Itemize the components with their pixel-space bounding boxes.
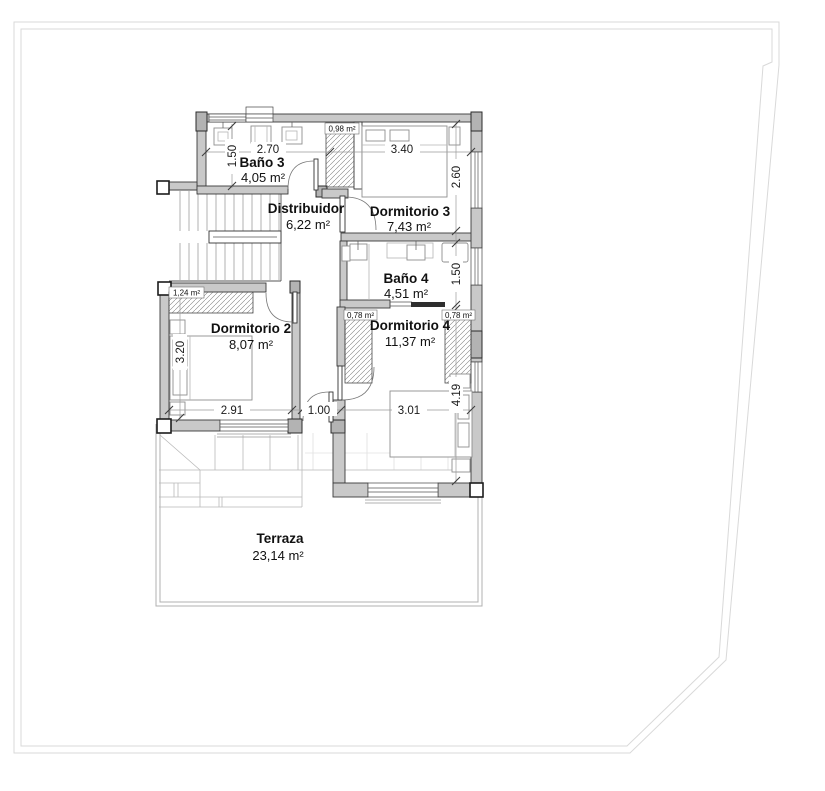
dorm4-wardrobe-left bbox=[345, 311, 372, 383]
pillar-dorm4-se bbox=[470, 483, 483, 497]
room-area-terraza: 23,14 m² bbox=[252, 548, 304, 563]
label-dorm2-wardrobe-area: 1,24 m² bbox=[173, 289, 200, 298]
dim-dorm2-depth: 3.20 bbox=[175, 341, 187, 363]
label-hall-closet-area: 0,98 m² bbox=[328, 125, 355, 134]
corner-pillar-ne bbox=[471, 112, 482, 131]
dim-dorm3-width: 3.40 bbox=[391, 144, 413, 156]
bed-dorm3 bbox=[362, 126, 460, 197]
dim-dorm4-depth: 4.19 bbox=[451, 384, 463, 406]
dim-bano3-depth: 1.50 bbox=[227, 145, 239, 167]
room-area-dorm2: 8,07 m² bbox=[229, 337, 274, 352]
room-area-dorm4: 11,37 m² bbox=[385, 334, 436, 349]
room-name-dorm4: Dormitorio 4 bbox=[370, 318, 451, 333]
window-north-opening bbox=[246, 107, 273, 122]
room-area-dorm3: 7,43 m² bbox=[387, 219, 432, 234]
corner-pillar-nw bbox=[196, 112, 207, 131]
window-dorm3-east bbox=[471, 152, 482, 208]
pillar-dorm2-sw bbox=[157, 419, 171, 433]
room-area-bano3: 4,05 m² bbox=[241, 170, 286, 185]
dim-passage-width: 1.00 bbox=[308, 405, 330, 417]
room-name-bano3: Baño 3 bbox=[239, 155, 285, 170]
dim-dorm4-width: 3.01 bbox=[398, 405, 420, 417]
interior-staircase bbox=[169, 190, 281, 281]
floor-plan-sheet: 2.70 3.40 1.50 2.60 1.50 4.19 3.20 2.91 … bbox=[0, 0, 825, 791]
room-area-distribuidor: 6,22 m² bbox=[286, 217, 331, 232]
pillar-stair-nw bbox=[157, 181, 169, 194]
room-name-dorm2: Dormitorio 2 bbox=[211, 321, 291, 336]
room-name-bano4: Baño 4 bbox=[383, 271, 429, 286]
east-pillar bbox=[471, 331, 482, 358]
window-dorm4-south bbox=[365, 483, 441, 503]
room-name-terraza: Terraza bbox=[256, 531, 304, 546]
window-bano4-east bbox=[471, 248, 482, 285]
dim-dorm2-width: 2.91 bbox=[221, 405, 243, 417]
dim-bano4-depth: 1.50 bbox=[451, 263, 463, 285]
sliding-door-leaf bbox=[411, 302, 445, 307]
window-dorm4-east bbox=[471, 362, 482, 392]
room-area-bano4: 4,51 m² bbox=[384, 286, 429, 301]
room-name-dorm3: Dormitorio 3 bbox=[370, 204, 451, 219]
door-bano3 bbox=[288, 159, 318, 190]
room-name-distribuidor: Distribuidor bbox=[268, 201, 345, 216]
window-bano3-north bbox=[209, 114, 246, 122]
window-dorm2-south bbox=[217, 420, 291, 437]
floor-plan-drawing: 2.70 3.40 1.50 2.60 1.50 4.19 3.20 2.91 … bbox=[0, 0, 825, 791]
dim-dorm3-depth: 2.60 bbox=[451, 166, 463, 188]
